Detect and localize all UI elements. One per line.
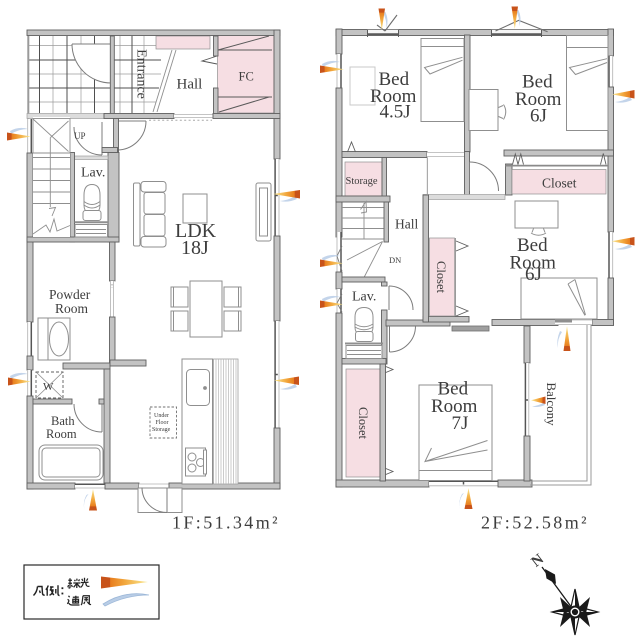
svg-text:Storage: Storage [346, 176, 378, 187]
svg-text:6J: 6J [525, 264, 542, 285]
svg-text:Hall: Hall [395, 217, 418, 232]
svg-text:Powder: Powder [49, 287, 91, 302]
svg-text:Closet: Closet [434, 261, 448, 293]
svg-text:18J: 18J [181, 237, 209, 259]
svg-text:4.5J: 4.5J [380, 102, 411, 123]
svg-text:2F:52.58m²: 2F:52.58m² [481, 513, 589, 533]
svg-text:6J: 6J [530, 106, 547, 127]
svg-text:Floor: Floor [156, 420, 169, 426]
svg-text:W: W [43, 381, 54, 393]
svg-text:Lav.: Lav. [81, 166, 105, 181]
svg-text:Balcony: Balcony [544, 382, 559, 426]
svg-text:Room: Room [46, 427, 77, 441]
svg-text:Storage: Storage [152, 427, 171, 433]
svg-text:Hall: Hall [177, 77, 203, 93]
svg-text:7J: 7J [452, 413, 469, 434]
svg-text:FC: FC [239, 70, 254, 84]
svg-text:Room: Room [55, 301, 89, 316]
svg-text:Closet: Closet [542, 176, 577, 191]
svg-text:Under: Under [154, 413, 169, 419]
svg-text:1F:51.34m²: 1F:51.34m² [172, 513, 280, 533]
svg-text:Bath: Bath [51, 414, 75, 428]
svg-text:Lav.: Lav. [352, 290, 376, 305]
svg-text:DN: DN [389, 255, 401, 265]
svg-text:Closet: Closet [356, 407, 370, 439]
svg-text:Entrance: Entrance [134, 49, 149, 99]
svg-text:UP: UP [74, 131, 86, 141]
